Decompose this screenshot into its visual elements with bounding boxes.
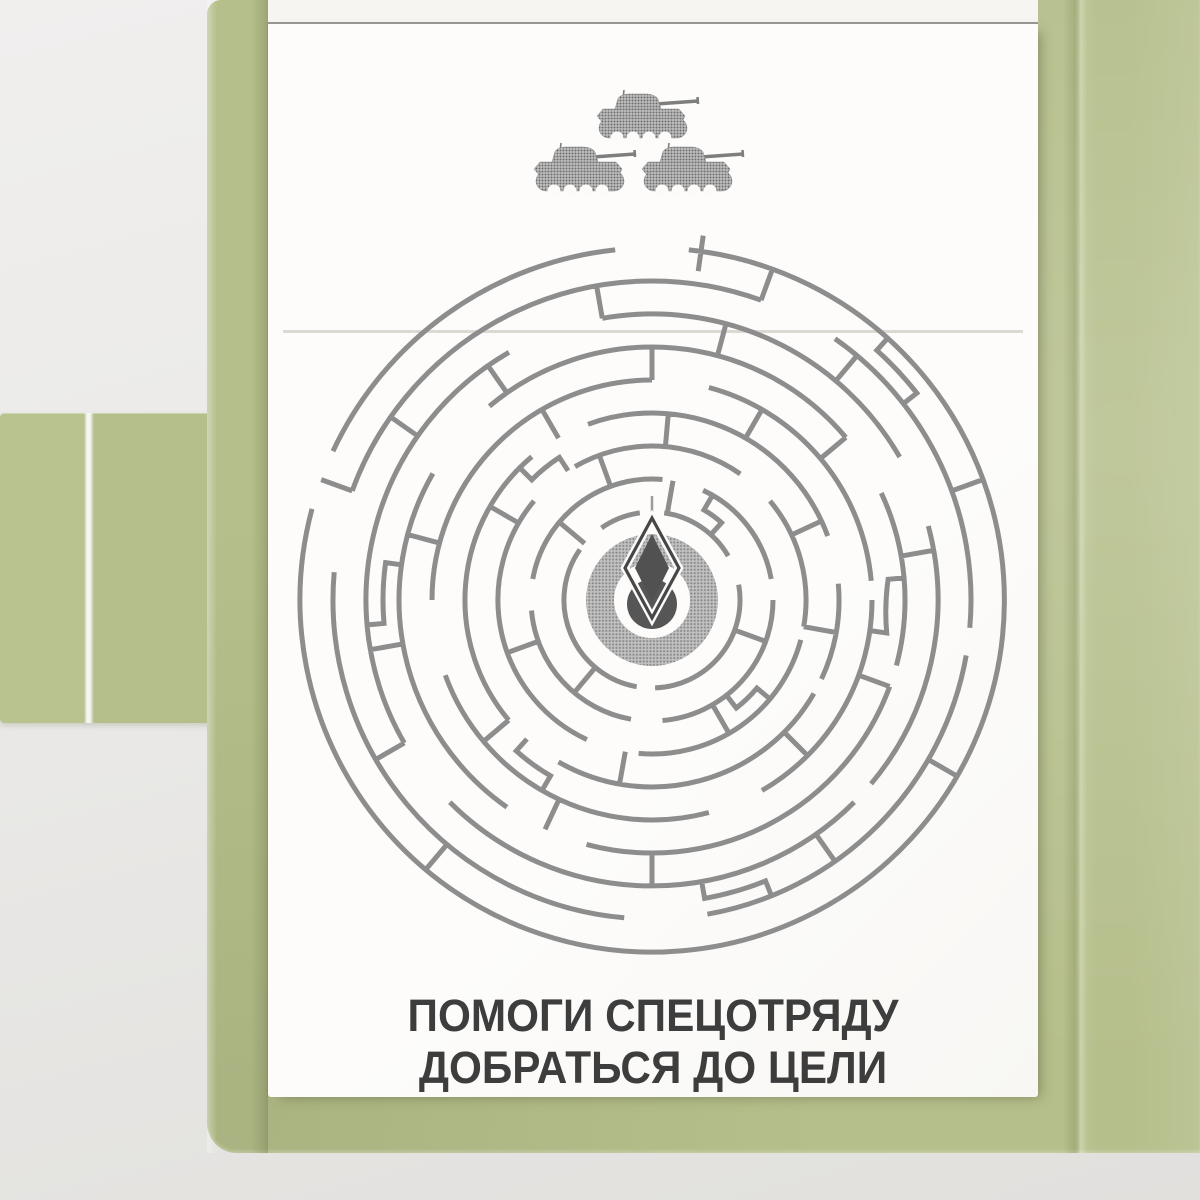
caption-line-2: ДОБРАТЬСЯ ДО ЦЕЛИ <box>291 1042 1015 1094</box>
maze-page: ПОМОГИ СПЕЦОТРЯДУ ДОБРАТЬСЯ ДО ЦЕЛИ <box>268 22 1038 1097</box>
photo-scene: ПОМОГИ СПЕЦОТРЯДУ ДОБРАТЬСЯ ДО ЦЕЛИ <box>0 0 1200 1200</box>
cover-fold-crease <box>1063 0 1097 1153</box>
tank-icon-1 <box>597 90 698 145</box>
cover-sheen <box>1127 0 1200 1153</box>
spine-fold-shading <box>207 0 268 1153</box>
page-art <box>268 24 1038 1097</box>
caption: ПОМОГИ СПЕЦОТРЯДУ ДОБРАТЬСЯ ДО ЦЕЛИ <box>291 990 1015 1094</box>
tank-icon-2 <box>534 143 635 198</box>
target-icon <box>600 518 704 652</box>
caption-line-1: ПОМОГИ СПЕЦОТРЯДУ <box>291 990 1015 1042</box>
tank-icon-3 <box>642 143 743 198</box>
